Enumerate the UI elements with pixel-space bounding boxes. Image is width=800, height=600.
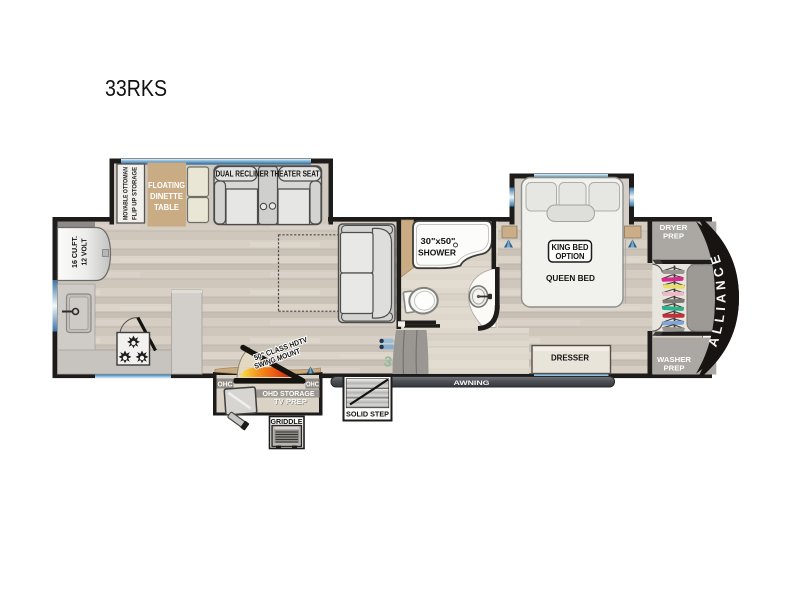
svg-text:33RKS: 33RKS bbox=[105, 75, 167, 101]
svg-text:30"x50": 30"x50" bbox=[421, 237, 456, 246]
svg-text:DUAL RECLINER THEATER SEAT: DUAL RECLINER THEATER SEAT bbox=[216, 169, 321, 179]
svg-text:FLIP UP STORAGE: FLIP UP STORAGE bbox=[132, 166, 139, 220]
svg-text:TV PREP: TV PREP bbox=[274, 399, 307, 406]
svg-text:SHOWER: SHOWER bbox=[418, 249, 456, 258]
svg-text:FLOATING: FLOATING bbox=[148, 181, 185, 190]
svg-text:MOVABLE OTTOMAN: MOVABLE OTTOMAN bbox=[123, 167, 130, 220]
svg-text:OHD STORAGE: OHD STORAGE bbox=[263, 391, 315, 398]
svg-text:SOLID STEP: SOLID STEP bbox=[346, 410, 389, 419]
svg-text:OHC: OHC bbox=[218, 381, 233, 388]
svg-text:GRIDDLE: GRIDDLE bbox=[271, 417, 303, 426]
svg-text:PREP: PREP bbox=[664, 366, 685, 373]
svg-text:DINETTE: DINETTE bbox=[150, 192, 183, 201]
svg-text:DRYER: DRYER bbox=[660, 225, 688, 232]
svg-text:KING BED: KING BED bbox=[552, 243, 589, 252]
svg-text:16 CU.FT.: 16 CU.FT. bbox=[70, 236, 79, 268]
svg-text:DRESSER: DRESSER bbox=[551, 353, 589, 363]
svg-text:PREP: PREP bbox=[663, 234, 684, 241]
svg-text:QUEEN BED: QUEEN BED bbox=[546, 273, 595, 283]
svg-text:TABLE: TABLE bbox=[154, 203, 179, 212]
svg-text:OHC: OHC bbox=[306, 381, 319, 388]
svg-text:AWNING: AWNING bbox=[454, 380, 490, 387]
svg-text:OPTION: OPTION bbox=[556, 252, 585, 261]
svg-text:WASHER: WASHER bbox=[657, 357, 691, 364]
svg-text:12 VOLT: 12 VOLT bbox=[80, 238, 89, 265]
